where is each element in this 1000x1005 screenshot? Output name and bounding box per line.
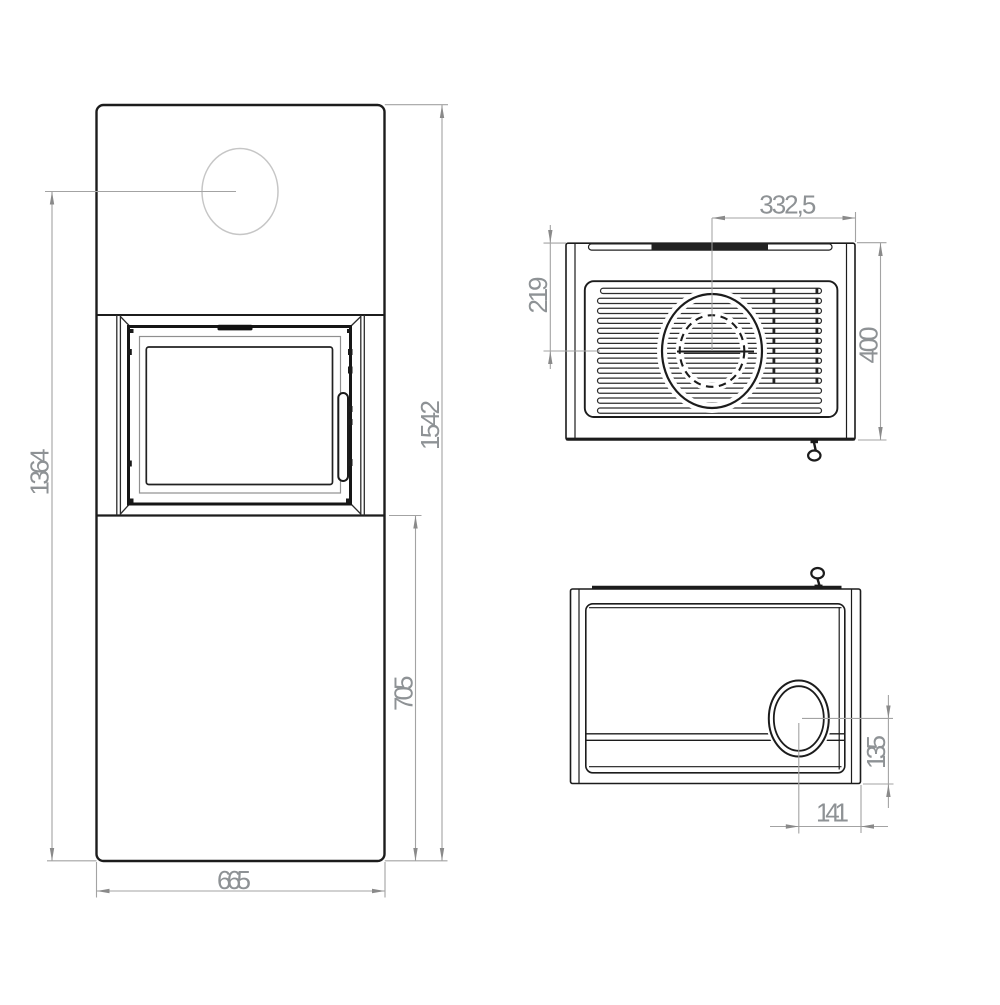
svg-text:400: 400 (854, 327, 884, 364)
svg-text:705: 705 (389, 676, 419, 712)
svg-text:219: 219 (523, 277, 553, 314)
svg-text:1364: 1364 (25, 449, 55, 496)
svg-text:665: 665 (217, 865, 251, 895)
svg-text:135: 135 (861, 735, 891, 769)
svg-text:1542: 1542 (415, 400, 445, 450)
svg-text:141: 141 (816, 798, 849, 828)
svg-text:332,5: 332,5 (759, 190, 816, 220)
